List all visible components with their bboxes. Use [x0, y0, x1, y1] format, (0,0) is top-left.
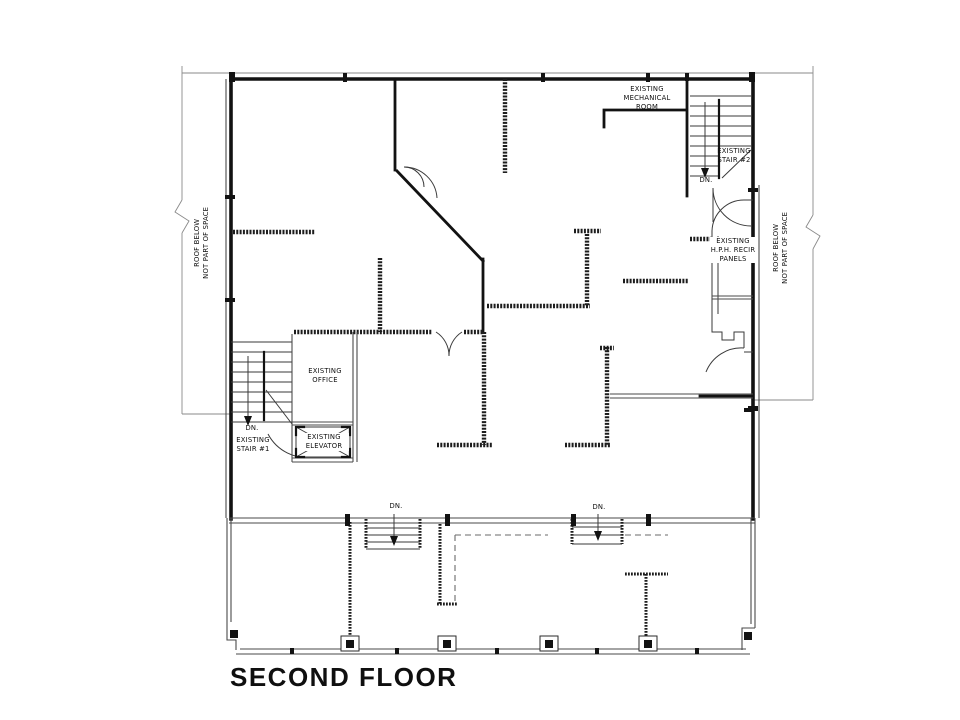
roof-below-right-label: ROOF BELOW NOT PART OF SPACE — [772, 188, 790, 308]
elevator-label: EXISTING ELEVATOR — [299, 433, 349, 451]
double-door — [436, 332, 462, 356]
floorplan-page: EXISTING MECHANICAL ROOM EXISTING STAIR … — [0, 0, 960, 720]
porch-dn-left-label: DN. — [383, 502, 409, 511]
porch-strip — [227, 514, 755, 654]
drawing-title: SECOND FLOOR — [230, 662, 457, 693]
exterior-walls — [226, 79, 759, 519]
stair2-dn-label: DN. — [694, 176, 718, 185]
panel-bay-label: EXISTING H.P.H. RECIR PANELS — [710, 237, 756, 263]
stair1-label: EXISTING STAIR #1 — [228, 436, 278, 454]
porch-dn-right-label: DN. — [586, 503, 612, 512]
interior-walls-solid — [395, 79, 687, 332]
interior-walls-hatched — [233, 79, 712, 445]
floorplan-drawing — [0, 0, 960, 720]
roof-below-left-label: ROOF BELOW NOT PART OF SPACE — [193, 183, 211, 303]
stair2-label: EXISTING STAIR #2 — [712, 147, 756, 165]
office-label: EXISTING OFFICE — [297, 367, 353, 385]
stair1-dn-label: DN. — [240, 424, 264, 433]
right-wing-wall — [610, 394, 758, 411]
columns — [225, 72, 758, 654]
mech-room-label: EXISTING MECHANICAL ROOM — [604, 85, 690, 111]
